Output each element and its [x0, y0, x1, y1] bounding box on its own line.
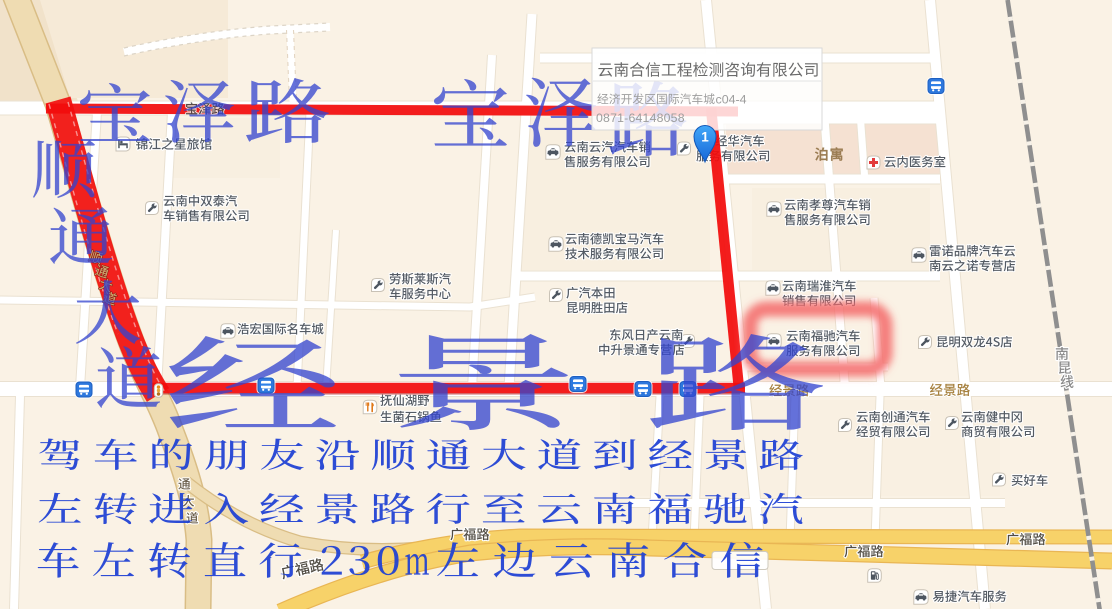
svg-text:0871-64148058: 0871-64148058 — [596, 111, 685, 125]
svg-text:1: 1 — [701, 130, 709, 145]
svg-text:c04-4: c04-4 — [716, 92, 747, 106]
